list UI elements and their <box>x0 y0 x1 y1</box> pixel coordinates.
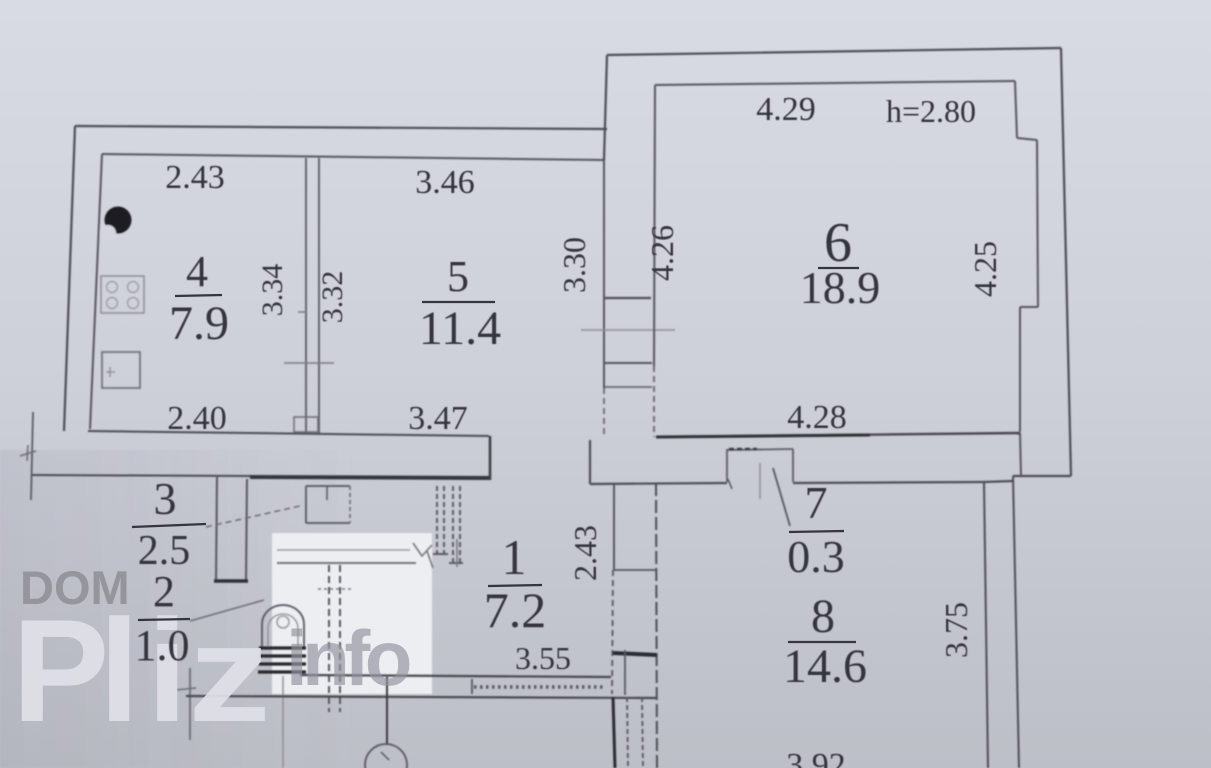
svg-text:z: z <box>188 597 271 751</box>
svg-text:3.55: 3.55 <box>515 640 571 676</box>
svg-text:4: 4 <box>186 247 208 296</box>
svg-text:3.46: 3.46 <box>415 164 475 201</box>
svg-text:2.43: 2.43 <box>165 159 225 196</box>
svg-text:4.26: 4.26 <box>644 225 680 281</box>
svg-text:3.30: 3.30 <box>556 237 592 293</box>
svg-text:2.43: 2.43 <box>567 525 603 581</box>
svg-text:18.9: 18.9 <box>800 262 881 313</box>
svg-text:7: 7 <box>805 477 828 528</box>
svg-text:7.2: 7.2 <box>484 582 547 638</box>
svg-text:l: l <box>99 589 140 752</box>
svg-text:14.6: 14.6 <box>783 640 867 693</box>
svg-text:3: 3 <box>154 473 177 524</box>
svg-text:3.34: 3.34 <box>256 264 289 317</box>
svg-text:7.9: 7.9 <box>169 297 229 350</box>
svg-text:2.40: 2.40 <box>167 400 227 437</box>
svg-text:8: 8 <box>811 590 835 643</box>
svg-text:2: 2 <box>153 567 175 616</box>
svg-text:3.32: 3.32 <box>316 271 349 324</box>
svg-text:3.75: 3.75 <box>938 602 974 658</box>
svg-text:11.4: 11.4 <box>419 302 501 355</box>
svg-text:info: info <box>286 614 410 702</box>
svg-text:3.92: 3.92 <box>786 747 846 768</box>
svg-text:5: 5 <box>447 252 469 301</box>
svg-text:4.25: 4.25 <box>967 241 1003 297</box>
svg-text:3.47: 3.47 <box>408 400 468 437</box>
svg-text:P: P <box>12 589 109 752</box>
svg-text:h=2.80: h=2.80 <box>886 93 976 129</box>
svg-text:4.29: 4.29 <box>756 91 816 128</box>
svg-text:1.0: 1.0 <box>135 621 190 670</box>
svg-text:1: 1 <box>502 529 527 585</box>
svg-text:0.3: 0.3 <box>787 531 845 582</box>
svg-text:4.28: 4.28 <box>787 399 847 436</box>
